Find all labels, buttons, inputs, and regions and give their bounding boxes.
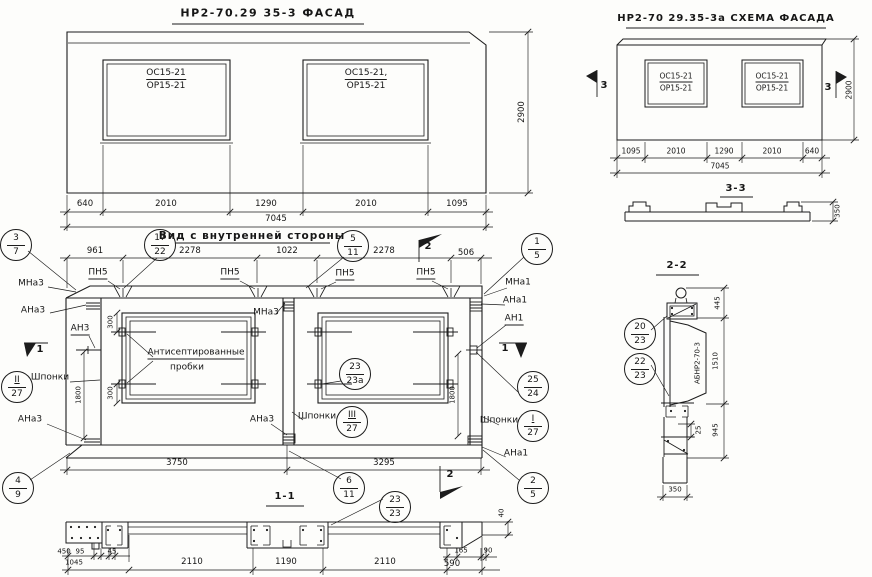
balloon-1-5: 1 5 <box>521 233 553 265</box>
antiseptic-note-line1: Антисептированные <box>147 349 244 360</box>
section-3-3-geometry <box>625 197 838 224</box>
balloon-top: III <box>343 410 361 422</box>
dim-40: 40 <box>499 509 506 518</box>
schema-view-geometry <box>586 28 859 178</box>
balloon-bottom: 7 <box>13 246 19 257</box>
section-1-1-title: 1-1 <box>274 492 295 502</box>
balloon-bottom: 23 <box>634 335 645 346</box>
s11-dim: 590 <box>444 560 460 569</box>
balloon-bottom: 9 <box>15 489 21 500</box>
schema-dim: 2010 <box>762 147 781 155</box>
schema-dim: 1290 <box>714 147 733 155</box>
balloon-bottom: 24 <box>527 388 538 399</box>
facade-window2-label: ОС15-21, ОР15-21 <box>345 69 387 91</box>
internal-top-dim: 1022 <box>276 247 298 256</box>
balloon-bottom: 23а <box>347 375 364 386</box>
window-mark-bottom: ОР15-21 <box>660 84 692 92</box>
balloon-6-11: 6 11 <box>333 472 365 504</box>
dim-300: 300 <box>108 315 115 328</box>
ana1-label: АНа1 <box>503 297 527 306</box>
balloon-top: 5 <box>344 234 362 246</box>
s11-dim: 1190 <box>275 558 297 567</box>
pn5-label: ПН5 <box>220 269 239 280</box>
window-mark-top: ОС15-21 <box>660 73 693 83</box>
s11-subdim: 95 <box>76 549 85 556</box>
balloon-top: 20 <box>631 322 649 334</box>
balloon-top: I <box>524 414 542 426</box>
s11-subdim-right: 90 <box>484 548 493 555</box>
balloon-bottom: 27 <box>11 388 22 399</box>
balloon-17-22: 17 22 <box>144 229 176 261</box>
balloon-2-5: 2 5 <box>517 472 549 504</box>
balloon-I-27: I 27 <box>517 410 549 442</box>
balloon-top: 1 <box>528 237 546 249</box>
section-1-marker-left: 1 <box>37 345 44 355</box>
internal-top-dim: 961 <box>87 247 103 256</box>
balloon-bottom: 5 <box>534 250 540 261</box>
s11-subdim: 450 <box>57 549 70 556</box>
section-2-marker-top: 2 <box>425 242 432 252</box>
facade-dim: 1290 <box>255 200 277 209</box>
internal-bottom-dim: 3295 <box>373 459 395 468</box>
ana3-label: АНа3 <box>21 307 45 316</box>
drawing-geometry <box>0 0 872 577</box>
section-2-2-title: 2-2 <box>666 261 687 271</box>
balloon-top: 2 <box>524 476 542 488</box>
dim-1510: 1510 <box>713 352 720 370</box>
facade-dim: 640 <box>77 200 93 209</box>
balloon-23-23: 23 23 <box>379 491 411 523</box>
s11-subdim-right: 165 <box>454 548 467 555</box>
dim-1800: 1800 <box>450 386 457 404</box>
s11-dim: 2110 <box>374 558 396 567</box>
internal-top-dim: 506 <box>458 249 474 258</box>
balloon-bottom: 11 <box>343 489 354 500</box>
window-mark-top: ОС15-21 <box>756 73 789 83</box>
shponki-center-label: Шпонки <box>298 413 336 422</box>
dim-945: 945 <box>713 423 720 436</box>
internal-top-dim: 2278 <box>179 247 201 256</box>
dim-1800: 1800 <box>76 386 83 404</box>
panel-mark-label: АБНР2-70-3 <box>695 342 702 384</box>
drawing-canvas: НР2-70.29 35-3 ФАСАД ОС15-21 ОР15-21 ОС1… <box>0 0 872 577</box>
ana1-bottom-label: АНа1 <box>504 450 528 459</box>
balloon-25-24: 25 24 <box>517 371 549 403</box>
balloon-top: II <box>8 375 26 387</box>
schema-dim: 1095 <box>621 147 640 155</box>
schema-window1-label: ОС15-21 ОР15-21 <box>660 73 693 92</box>
balloon-20-23: 20 23 <box>624 318 656 350</box>
schema-dim: 2010 <box>666 147 685 155</box>
balloon-bottom: 23 <box>389 508 400 519</box>
facade-dim: 2010 <box>155 200 177 209</box>
ana3-bottom-label: АНа3 <box>18 416 42 425</box>
balloon-23-23a: 23 23а <box>339 358 371 390</box>
balloon-bottom: 5 <box>530 489 536 500</box>
pn5-label: ПН5 <box>88 269 107 280</box>
s11-dim: 1045 <box>65 560 83 567</box>
balloon-bottom: 27 <box>346 423 357 434</box>
facade-height-dim: 2900 <box>518 101 527 123</box>
dim-445: 445 <box>715 296 722 309</box>
s11-subdim: 45 <box>108 549 117 556</box>
balloon-top: 17 <box>151 233 169 245</box>
section-3-3-title: 3-3 <box>725 184 746 194</box>
balloon-top: 6 <box>340 476 358 488</box>
schema-window2-label: ОС15-21 ОР15-21 <box>756 73 789 92</box>
balloon-bottom: 27 <box>527 427 538 438</box>
schema-title: НР2-70 29.35-3а СХЕМА ФАСАДА <box>617 14 835 24</box>
internal-bottom-dim: 3750 <box>166 459 188 468</box>
balloon-top: 4 <box>9 476 27 488</box>
balloon-3-7: 3 7 <box>0 229 32 261</box>
mna3-label: МНа3 <box>18 280 44 289</box>
balloon-top: 23 <box>386 495 404 507</box>
window-mark-bottom: ОР15-21 <box>347 82 386 91</box>
balloon-top: 25 <box>524 375 542 387</box>
section-1-marker-right: 1 <box>502 344 509 354</box>
section-3-marker-right: 3 <box>825 83 832 93</box>
mna1-label: МНа1 <box>505 279 531 288</box>
pn5-label: ПН5 <box>335 270 354 281</box>
schema-height-dim: 2900 <box>845 80 853 99</box>
window-mark-top: ОС15-21 <box>146 69 186 80</box>
balloon-II-27: II 27 <box>1 371 33 403</box>
internal-title: Вид с внутренней стороны <box>159 231 346 242</box>
dim-350: 350 <box>668 487 681 494</box>
facade-dim: 1095 <box>446 200 468 209</box>
window-mark-bottom: ОР15-21 <box>756 84 788 92</box>
balloon-top: 22 <box>631 357 649 369</box>
facade-title: НР2-70.29 35-3 ФАСАД <box>180 8 355 19</box>
balloon-bottom: 11 <box>347 247 358 258</box>
section-2-marker-bottom: 2 <box>447 470 454 480</box>
facade-window1-label: ОС15-21 ОР15-21 <box>146 69 186 91</box>
an3-label: АН3 <box>71 325 90 336</box>
balloon-bottom: 22 <box>154 246 165 257</box>
section-3-marker-left: 3 <box>601 81 608 91</box>
pn5-label: ПН5 <box>416 269 435 280</box>
section-3-3-height: 350 <box>835 204 842 217</box>
window-mark-top: ОС15-21, <box>345 69 387 80</box>
balloon-top: 3 <box>7 233 25 245</box>
s11-dim: 2110 <box>181 558 203 567</box>
internal-top-dim: 2278 <box>373 247 395 256</box>
window-mark-bottom: ОР15-21 <box>147 82 186 91</box>
ana3-center-label: АНа3 <box>250 416 274 425</box>
balloon-III-27: III 27 <box>336 406 368 438</box>
an1-label: АН1 <box>505 315 524 326</box>
dim-300: 300 <box>108 386 115 399</box>
schema-total-dim: 7045 <box>710 162 729 170</box>
facade-dim: 2010 <box>355 200 377 209</box>
shponki-left-label: Шпонки <box>31 374 69 383</box>
mna3-center-label: МНа3 <box>253 309 279 318</box>
shponki-right-label: Шпонки <box>480 417 518 426</box>
schema-dim: 640 <box>805 147 819 155</box>
balloon-top: 23 <box>346 362 364 374</box>
antiseptic-note-line2: пробки <box>170 364 204 373</box>
balloon-bottom: 23 <box>634 370 645 381</box>
balloon-4-9: 4 9 <box>2 472 34 504</box>
dim-25: 25 <box>696 426 703 435</box>
balloon-22-23: 22 23 <box>624 353 656 385</box>
facade-total-dim: 7045 <box>265 215 287 224</box>
balloon-5-11: 5 11 <box>337 230 369 262</box>
